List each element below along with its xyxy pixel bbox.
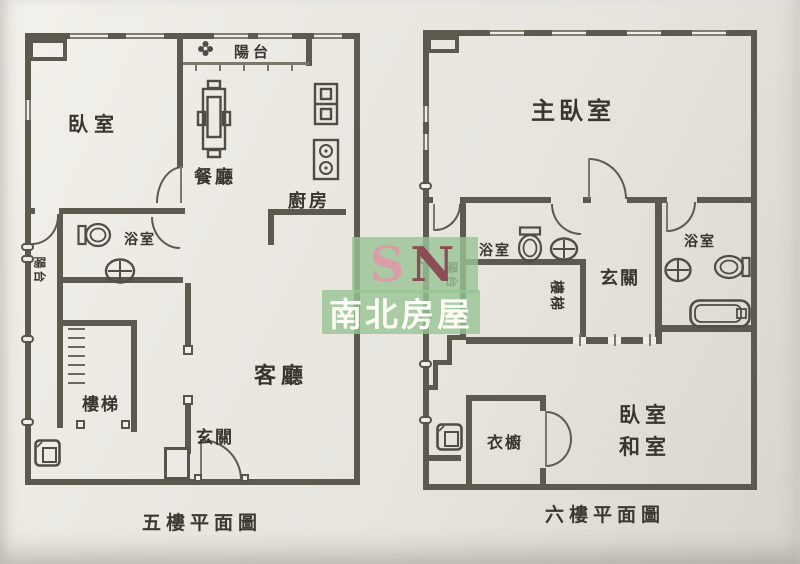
circle-shape [324,166,327,169]
rect-shape [445,432,458,446]
room-label-bathroom: 浴室 [124,229,156,249]
floorplan-photo: 臥室 陽台 餐廳 廚房 浴室 陽台 樓梯 客廳 玄關 五樓平面圖 [0,0,800,564]
room-label-bedroom-line2: 和室 [619,431,671,461]
thin-line [291,62,293,71]
rect-shape [520,228,540,235]
rect-shape [695,305,741,322]
thin-line [195,62,197,71]
window-marker [25,100,31,120]
ellipse-shape [715,256,743,278]
wall [655,197,662,344]
room-label-dining: 餐廳 [194,163,236,189]
wall [57,283,63,428]
wall [751,30,757,490]
watermark-sn-logo: SN [352,237,478,293]
toilet-icon [78,222,112,248]
wall [423,455,461,461]
thin-line [219,62,221,71]
room-label-kitchen: 廚房 [288,187,330,213]
thin-line [545,411,547,467]
g-shape [315,84,337,124]
wall [466,337,662,344]
duct-box [427,36,459,53]
thin-line [649,334,651,346]
wall [25,479,360,485]
watermark-brand-text: 南北房屋 [322,290,480,334]
wall [466,395,546,401]
thin-line [579,334,581,346]
wall [57,214,63,283]
floor5-caption: 五樓平面圖 [142,508,262,535]
watermark-brand-label: 南北房屋 [329,288,473,336]
wall [177,39,183,167]
ellipse-shape [524,240,537,257]
railing-knob [419,416,432,424]
circle-shape [324,149,327,152]
duct-box [29,39,67,61]
sink-icon [664,257,692,283]
line-shape [37,442,42,447]
room-label-stairs: 樓梯 [82,390,120,415]
room-label-balcony-top: 陽台 [234,41,272,62]
flower-icon [197,40,214,57]
bathtub-icon [689,299,751,328]
window-marker [314,33,342,39]
railing-knob [21,418,34,426]
wall [185,283,191,345]
railing-knob [21,243,34,251]
room-label-balcony-left: 陽台 [32,256,49,284]
door-arc [546,411,572,439]
door-arc [435,204,461,231]
ellipse-shape [86,224,110,246]
room-label-bedroom: 臥室 [68,108,120,137]
door-jamb [241,474,249,482]
ellipse-shape [721,261,738,274]
door-arc [667,202,696,232]
rect-shape [208,97,221,137]
thin-line [588,158,590,199]
column-cap [183,395,193,405]
room-label-entry: 玄關 [600,264,640,290]
ellipse-shape [91,229,106,242]
room-label-closet: 衣櫥 [487,429,523,453]
railing-knob [419,182,432,190]
wall [268,209,274,245]
room-label-living: 客廳 [254,358,308,390]
window-marker [70,33,108,39]
thin-line [180,166,182,203]
door-jamb [121,420,130,429]
window-marker [214,33,248,39]
wall [423,385,437,390]
wall [540,468,546,484]
window-marker [258,33,292,39]
wall [25,208,35,214]
window-marker [490,30,524,36]
shoe-cabinet [164,447,190,480]
room-label-bathroom-left: 浴室 [479,240,511,260]
door-arc [32,216,59,245]
toilet-icon [714,254,750,280]
wall [540,395,546,411]
stove-icon [313,139,339,180]
fridge-icon [314,83,338,125]
g-shape [198,81,230,157]
window-marker [627,30,661,36]
window-marker [552,30,586,36]
watermark-letter-n: N [410,241,460,289]
wall [423,197,433,203]
door-arc [156,166,183,203]
room-label-stairs: 樓梯 [547,280,567,312]
floor6-caption: 六樓平面圖 [545,500,665,527]
sink-icon [549,237,579,261]
dining-table-icon [197,80,231,158]
window-marker [423,134,429,150]
wall [131,320,137,432]
wall [466,395,472,484]
railing-knob [419,360,432,368]
door-arc [589,158,627,199]
window-marker [423,106,429,122]
wall [461,197,551,203]
room-label-master-bedroom: 主臥室 [531,91,615,126]
window-marker [692,30,726,36]
wall [580,259,586,344]
door-jamb [76,420,85,429]
washing-machine-icon [34,439,61,467]
column-cap [183,345,193,355]
thin-line [433,204,435,231]
washing-machine-icon [436,423,463,451]
line-shape [439,426,444,431]
rect-shape [208,150,220,157]
thin-line [243,62,245,71]
thin-line [666,202,668,232]
toilet-icon [517,227,543,263]
rect-shape [43,448,56,462]
sink-icon [104,258,136,284]
rect-shape [321,89,331,99]
room-label-bathroom-right: 浴室 [684,231,716,251]
stair-treads [68,328,85,388]
window-marker [126,33,164,39]
room-label-entry: 玄關 [196,423,234,448]
wall [423,484,757,490]
thin-line [614,334,616,346]
thin-line [267,62,269,71]
rect-shape [321,109,331,119]
wall [59,208,185,214]
room-label-bedroom-line1: 臥室 [619,399,671,429]
door-jamb [194,474,202,482]
circle-shape [203,46,208,51]
rect-shape [79,226,86,244]
wall [697,197,757,203]
wall [63,320,137,326]
watermark-letter-s: S [370,241,411,289]
door-arc [546,439,572,467]
door-arc [551,204,581,235]
railing-knob [21,335,34,343]
rect-shape [208,81,220,88]
